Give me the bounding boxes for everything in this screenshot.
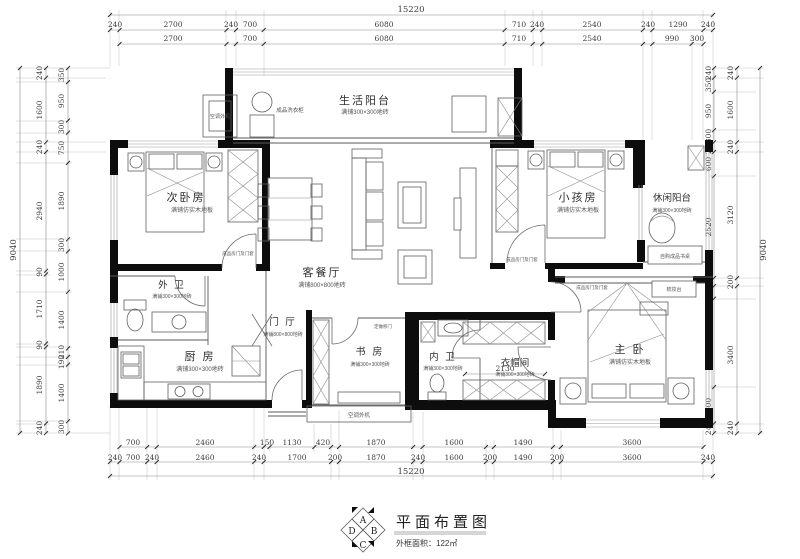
window-leisure-door (639, 185, 642, 240)
burner-icon (193, 387, 203, 397)
drawing-area-label: 外框面积：122㎡ (396, 538, 457, 548)
wall-master-step (548, 400, 556, 428)
dim: 90 (35, 340, 44, 350)
note-door-secondary: 成品房门及门套 (222, 250, 254, 257)
wardrobe-hatch (228, 150, 258, 222)
coffee-table (398, 182, 426, 228)
room-finish-life-balcony: 满铺300×300地砖 (341, 108, 389, 116)
burner-icon (175, 387, 185, 397)
room-finish-living-dining: 满铺800×800地砖 (298, 281, 346, 289)
window-kids-top (534, 141, 625, 147)
dining-chair (311, 184, 322, 197)
note-laundry-cabinet: 成品洗衣柜 (276, 106, 304, 114)
dim: 240 (411, 453, 426, 462)
rug (398, 250, 432, 284)
wall-master-bottom-a (556, 418, 586, 428)
dim: 240 (35, 421, 44, 436)
dim: 750 (57, 141, 66, 156)
dim: 300 (690, 34, 705, 43)
dim: 2460 (195, 453, 214, 462)
dim: 240 (252, 453, 267, 462)
dim: 1600 (444, 453, 463, 462)
sink-bowl (123, 354, 139, 364)
dim: 1600 (444, 438, 463, 447)
wardrobe-kids (496, 150, 518, 166)
dim: 700 (243, 34, 258, 43)
title-underline (394, 532, 486, 534)
dining-table (268, 178, 312, 240)
room-label-life-balcony: 生活阳台 (339, 93, 391, 107)
nightstand (560, 378, 586, 404)
dim: 1870 (366, 438, 385, 447)
sofa-seat (366, 222, 383, 246)
floor-plan-page: 15220 240 2700 240 700 6080 710 240 2540… (0, 0, 800, 559)
room-finish-secondary-bedroom: 满铺仿实木地板 (171, 206, 213, 214)
sofa-back (352, 158, 366, 250)
room-finish-kitchen: 满铺300×300地砖 (176, 365, 224, 373)
storage-hatch (688, 146, 704, 170)
bath2-cabinet-hatch (421, 322, 435, 342)
floor-plan-canvas: 15220 240 2700 240 700 6080 710 240 2540… (0, 0, 800, 559)
sink-bowl (123, 366, 139, 376)
basin-icon (444, 323, 462, 333)
dimension-lines (18, 13, 762, 478)
dining-chair (311, 206, 322, 219)
dim: 350 (704, 78, 713, 93)
window-bed2-top (128, 141, 218, 147)
dim: 2940 (35, 201, 44, 220)
wall-master-bottom-b (660, 418, 713, 428)
dim: 240 (35, 140, 44, 155)
dim: 6080 (374, 20, 393, 29)
dim: 240 (145, 453, 160, 462)
dim: 200 (328, 453, 343, 462)
dim: 3120 (726, 205, 735, 224)
compass-letter-e: B (371, 527, 378, 537)
room-finish-kids-room: 满铺仿实木地板 (557, 206, 599, 214)
chair-icon (649, 213, 675, 243)
sofa-armrest (352, 149, 382, 158)
wall-balcony-left (225, 68, 233, 144)
dim: 1490 (513, 453, 532, 462)
dim: 240 (108, 20, 123, 29)
kitchen-counter-bottom (144, 382, 266, 400)
wall-kids-bottom-a (490, 263, 505, 269)
wall-top-kids-left (490, 140, 534, 148)
dim: 1290 (668, 20, 687, 29)
laundry-cabinet-box (250, 115, 274, 137)
wall-leisure-left-top (637, 140, 645, 185)
dim: 200 (726, 275, 735, 290)
dim: 2540 (582, 34, 601, 43)
dim: 240 (224, 20, 239, 29)
dim: 950 (704, 104, 713, 119)
cloak-hatch-top (463, 322, 545, 344)
dim: 240 (530, 20, 545, 29)
dining-chair (311, 228, 322, 241)
wall-top-right-corner (705, 140, 713, 152)
dim: 420 (316, 438, 331, 447)
room-label-foyer: 门 厅 (269, 316, 297, 328)
room-finish-outer-bath: 满铺300×300地砖 (152, 293, 192, 300)
stove (168, 384, 210, 399)
dim: 1000 (57, 262, 66, 281)
dim: 1400 (57, 310, 66, 329)
dim-lines-right (714, 68, 760, 433)
dim: 90 (35, 267, 44, 277)
room-finish-master-bedroom: 满铺仿实木地板 (609, 358, 651, 366)
dim: 1600 (35, 100, 44, 119)
laundry-basin-icon (252, 92, 272, 112)
dim-bottom-total: 15220 (397, 467, 424, 477)
dim: 1600 (726, 100, 735, 119)
dim: 3600 (622, 438, 641, 447)
dim: 300 (57, 238, 66, 253)
room-finish-study: 满铺300×300地砖 (350, 361, 390, 368)
dim: 240 (726, 421, 735, 436)
balcony-cabinet (452, 96, 486, 132)
window-kitchen-left (111, 348, 117, 393)
sofa-armrest (352, 250, 382, 259)
dim: 990 (665, 34, 680, 43)
dim: 2460 (195, 438, 214, 447)
wall-cloak-right-c (548, 380, 555, 402)
dim: 240 (701, 20, 716, 29)
room-finish-leisure-balcony: 满铺300×300地砖 (652, 207, 692, 214)
dim: 1130 (282, 438, 301, 447)
study-cabinet (338, 392, 400, 403)
dim: 200 (483, 453, 498, 462)
wall-study-left (306, 310, 312, 408)
tv-icon (454, 198, 461, 230)
dim: 300 (57, 420, 66, 435)
wall-cloak-right-b (548, 312, 555, 340)
dim: 300 (57, 120, 66, 135)
drawing-title: 平面布置图 (396, 514, 491, 531)
sofa-seat (366, 192, 383, 220)
dim: 6080 (374, 34, 393, 43)
window-master-bottom (586, 420, 660, 427)
wall-left-mid (110, 240, 118, 303)
compass-letter-w: D (348, 527, 355, 537)
sofa-seat (366, 162, 383, 190)
window-bed2-left (111, 175, 117, 240)
dim: 3400 (726, 345, 735, 364)
dim: 2700 (163, 20, 182, 29)
room-finish-foyer: 满铺800×800地砖 (263, 331, 303, 338)
dim: 1870 (366, 453, 385, 462)
dim: 240 (35, 66, 44, 81)
window-balcony-top (233, 69, 514, 75)
dim: 2520 (704, 217, 713, 236)
toilet-icon (430, 374, 444, 392)
wall-bed2-bottom-a (110, 264, 222, 271)
entry-threshold (268, 412, 306, 416)
door-entry (272, 370, 302, 400)
wall-balcony-right (514, 68, 522, 144)
dim: 710 (512, 34, 527, 43)
balcony-sliding-line (233, 138, 514, 143)
basin-icon (172, 315, 186, 329)
note-door-master: 成品房门及门套 (576, 284, 608, 291)
wall-kitchen-bottom (110, 400, 272, 408)
dim-lines-top (110, 15, 713, 44)
door-study (332, 318, 358, 344)
compass-triangle-ne (368, 507, 374, 513)
dim: 240 (726, 66, 735, 81)
fridge-lines (232, 346, 260, 376)
compass-letter-n: A (359, 516, 367, 526)
dim: 700 (243, 20, 258, 29)
wall-bed2-bottom-b (256, 264, 270, 271)
dim: 240 (726, 140, 735, 155)
dim: 3600 (622, 453, 641, 462)
dim: 1710 (35, 299, 44, 318)
dim: 700 (126, 453, 141, 462)
cloak-wardrobe-top (463, 322, 545, 344)
dim: 700 (126, 438, 141, 447)
wall-bath2-bottom (405, 400, 556, 410)
wall-leisure-left-low (637, 240, 645, 262)
dim-right-total: 9040 (759, 239, 769, 261)
dim: 1700 (287, 453, 306, 462)
dim: 2700 (163, 34, 182, 43)
kitchen-sink (121, 352, 141, 378)
dim-left-total: 9040 (9, 239, 19, 261)
dim: 600 (704, 157, 713, 172)
dim: 350 (57, 68, 66, 83)
compass-letter-s: C (360, 541, 367, 551)
toilet-icon (127, 309, 143, 331)
dim: 240 (108, 453, 123, 462)
dim: 240 (701, 453, 716, 462)
bookcase-hatch (313, 320, 329, 404)
dim: 950 (57, 94, 66, 109)
bed-master (588, 310, 666, 402)
note-sliding-door: 定做移门 (374, 323, 392, 330)
compass-triangle-nw (352, 507, 358, 513)
dim: 1490 (513, 438, 532, 447)
note-desk: 自购成品书桌 (660, 253, 690, 260)
wall-bath2-top (419, 312, 549, 320)
nightstand (668, 378, 694, 404)
room-label-inner-bath: 内 卫 (429, 351, 457, 363)
cloakroom-inner-dim: 2130 (495, 364, 514, 373)
dim: 2540 (582, 20, 601, 29)
note-dresser: 梳妆台 (666, 286, 681, 293)
tv-console (460, 168, 476, 258)
wall-kids-bottom-b (545, 263, 643, 269)
wall-top-left-corner (110, 140, 128, 148)
dim: 240 (641, 20, 656, 29)
dim-top-total: 15220 (397, 5, 424, 15)
dim: 710 (512, 20, 527, 29)
wall-cloak-right-a (548, 263, 555, 282)
witness-lines (16, 10, 764, 480)
cloak-hatch-bottom (463, 380, 545, 400)
window-bath1-left (111, 303, 117, 337)
note-door-kids: 成品房门及门套 (506, 256, 538, 263)
rug-inner (404, 256, 426, 278)
dim: 1890 (35, 375, 44, 394)
note-ac-unit-balcony: 空调外机 (210, 113, 230, 120)
dim: 150 (260, 438, 275, 447)
room-label-outer-bath: 外 卫 (158, 279, 186, 291)
note-ac-unit-study: 空调外机 (348, 411, 371, 419)
room-label-kitchen: 厨 房 (184, 350, 215, 363)
room-label-master-bedroom: 主 卧 (614, 343, 645, 356)
wardrobe-hatch (496, 166, 518, 232)
toilet-tank (428, 392, 446, 400)
dim: 200 (550, 453, 565, 462)
dim: 190 (57, 355, 66, 370)
dim: 1400 (57, 383, 66, 402)
room-label-secondary-bedroom: 次卧房 (167, 190, 206, 204)
title-block: A B C D 平面布置图 外框面积：122㎡ (341, 507, 491, 552)
room-label-leisure-balcony: 休闲阳台 (653, 192, 691, 204)
wall-bath2-left (405, 312, 419, 408)
room-label-study: 书 房 (356, 345, 385, 358)
room-label-kids-room: 小孩房 (559, 191, 598, 204)
room-label-living-dining: 客餐厅 (303, 265, 342, 279)
dim: 1890 (57, 191, 66, 210)
toilet-tank (124, 300, 146, 310)
wall-right-leisure-low (705, 250, 713, 262)
wall-left-small (110, 337, 118, 348)
room-finish-inner-bath: 满铺300×300地砖 (423, 365, 463, 372)
